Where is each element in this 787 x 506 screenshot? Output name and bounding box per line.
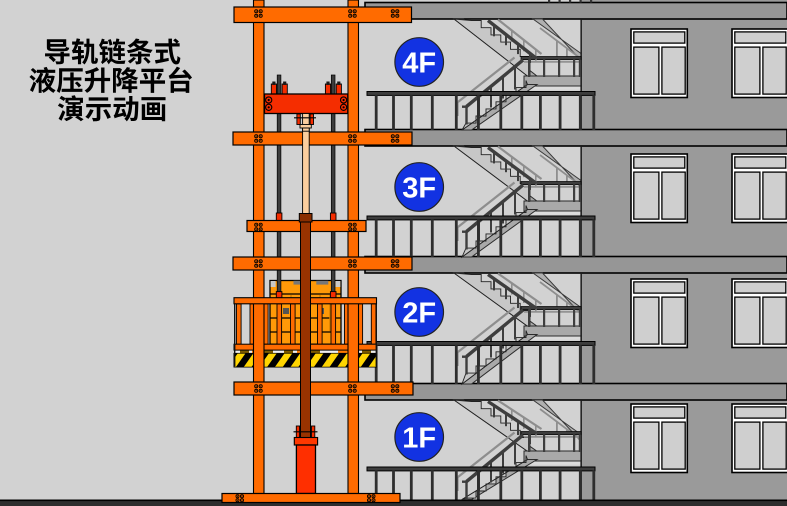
svg-text:2F: 2F bbox=[402, 298, 436, 330]
svg-text:4F: 4F bbox=[402, 48, 436, 80]
svg-text:3F: 3F bbox=[402, 173, 436, 205]
svg-text:1F: 1F bbox=[402, 423, 436, 455]
